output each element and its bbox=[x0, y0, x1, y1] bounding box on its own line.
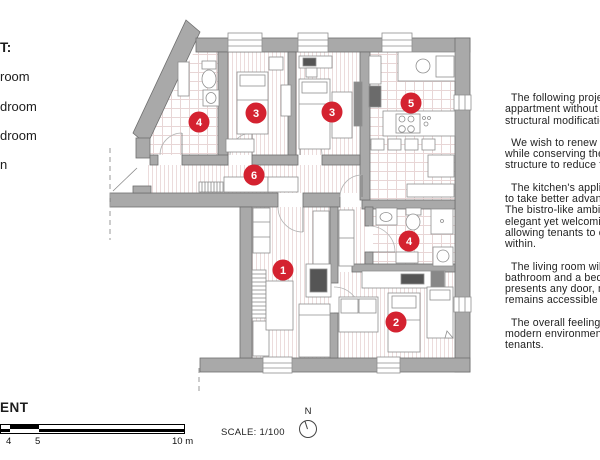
shelf-icon bbox=[253, 208, 270, 253]
sink-icon bbox=[416, 59, 430, 73]
hallway-south-wall bbox=[110, 193, 278, 207]
description-line: structure to reduce the bbox=[505, 160, 600, 171]
wardrobe-icon bbox=[226, 139, 254, 152]
svg-text:5: 5 bbox=[408, 98, 414, 110]
window-icon bbox=[382, 33, 412, 52]
wardrobe-icon bbox=[313, 211, 329, 266]
plan-title-fragment: ENT bbox=[0, 400, 29, 415]
svg-text:4: 4 bbox=[196, 117, 203, 129]
project-description: The following projec appartment without … bbox=[505, 93, 600, 363]
description-paragraph: We wish to renew the while conserving th… bbox=[505, 138, 600, 172]
north-label: N bbox=[300, 406, 316, 417]
scale-text: SCALE: 1/100 bbox=[221, 427, 285, 438]
toilet-icon bbox=[202, 61, 216, 69]
right-wall bbox=[455, 38, 470, 372]
legend-item: droom bbox=[0, 128, 37, 143]
description-line: within. bbox=[505, 239, 600, 250]
scale-tick: 5 bbox=[35, 436, 40, 447]
description-paragraph: The living room will b bathroom and a be… bbox=[505, 262, 600, 307]
window-icon bbox=[377, 357, 400, 373]
stool-icon bbox=[388, 139, 401, 150]
room-marker-hallway: 6 bbox=[244, 165, 265, 186]
room-marker-bedroom3-right: 3 bbox=[322, 102, 343, 123]
bottom-wall bbox=[200, 358, 470, 372]
room-marker-bedroom2: 2 bbox=[386, 312, 407, 333]
stool-icon bbox=[405, 139, 418, 150]
window-icon bbox=[228, 33, 262, 52]
compass-needle bbox=[305, 421, 309, 429]
description-paragraph: The kitchen's applian to take better adv… bbox=[505, 183, 600, 251]
floor-plan-page: 1 2 3 3 4 4 5 6 T: room droom droom n bbox=[0, 0, 600, 460]
legend-item: n bbox=[0, 157, 7, 172]
scale-bar bbox=[0, 424, 185, 434]
table-icon bbox=[266, 281, 293, 330]
svg-text:6: 6 bbox=[251, 170, 257, 182]
description-line: tenants. bbox=[505, 340, 600, 351]
legend-item: droom bbox=[0, 99, 37, 114]
sofa-icon bbox=[299, 304, 330, 357]
room-marker-kitchen: 5 bbox=[401, 93, 422, 114]
window-icon bbox=[263, 357, 292, 373]
description-paragraph: The overall feeling is modern environmen… bbox=[505, 318, 600, 352]
scale-bar-segment bbox=[10, 425, 39, 429]
scale-tick: 4 bbox=[6, 436, 11, 447]
description-line: structural modification bbox=[505, 116, 600, 127]
stool-icon bbox=[371, 139, 384, 150]
description-line: The bistro-like ambian bbox=[505, 205, 600, 216]
room-marker-bedroom3-left: 3 bbox=[246, 103, 267, 124]
window-icon bbox=[298, 33, 328, 52]
stool-icon bbox=[422, 139, 435, 150]
svg-text:2: 2 bbox=[393, 317, 399, 329]
description-paragraph: The following projec appartment without … bbox=[505, 93, 600, 127]
north-compass-icon bbox=[299, 420, 317, 438]
window-icon bbox=[454, 297, 471, 312]
scale-bar-segment bbox=[1, 429, 10, 433]
description-line: remains accessible by bbox=[505, 295, 600, 306]
description-line: appartment without re bbox=[505, 104, 600, 115]
legend-heading: T: bbox=[0, 40, 11, 55]
room-marker-living: 1 bbox=[273, 260, 294, 281]
room-marker-bathroom-top: 4 bbox=[189, 112, 210, 133]
svg-text:4: 4 bbox=[406, 236, 413, 248]
svg-text:1: 1 bbox=[280, 265, 286, 277]
legend-item: room bbox=[0, 69, 30, 84]
svg-text:3: 3 bbox=[253, 108, 259, 120]
svg-text:3: 3 bbox=[329, 107, 335, 119]
scale-tick: 10 m bbox=[172, 436, 193, 447]
tv-icon bbox=[310, 269, 327, 292]
room-marker-bathroom-bottom: 4 bbox=[399, 231, 420, 252]
scale-bar-segment bbox=[39, 429, 184, 433]
corridor-furniture bbox=[339, 210, 354, 266]
window-icon bbox=[454, 95, 471, 110]
